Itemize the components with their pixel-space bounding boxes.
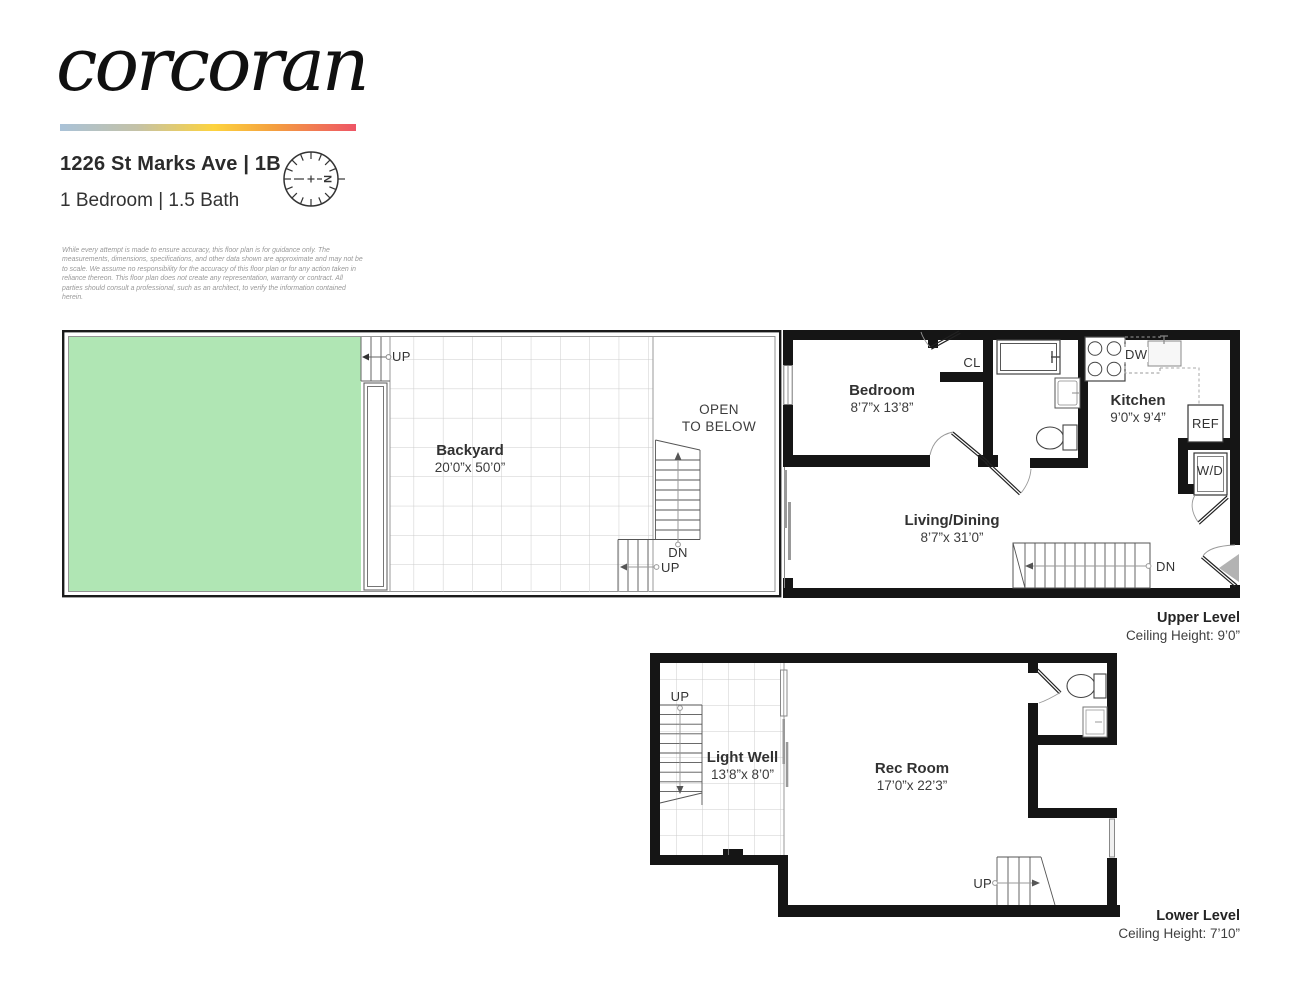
- lower-toilet-icon: [1067, 674, 1106, 698]
- compass-north-letter: N: [321, 175, 333, 183]
- dn-label-mid: DN: [659, 545, 697, 560]
- compass-icon: N: [278, 146, 348, 216]
- stove-icon: [1085, 337, 1125, 381]
- corcoran-logo: corcoran: [56, 28, 367, 102]
- up-label-backyard: UP: [392, 349, 411, 364]
- lower-level-caption: Lower Level Ceiling Height: 7’10”: [990, 908, 1240, 942]
- entry-stair: [1013, 543, 1150, 588]
- lower-bath-door: [1036, 669, 1061, 703]
- window-strip: [1110, 819, 1115, 857]
- upper-level-caption: Upper Level Ceiling Height: 9’0”: [990, 610, 1240, 644]
- disclaimer-text: While every attempt is made to ensure ac…: [62, 246, 364, 302]
- brand-gradient-bar: [60, 124, 356, 131]
- bedroom-label: Bedroom 8’7”x 13’8”: [802, 382, 962, 416]
- floorplan-page: { "brand": { "logo": "corcoran" }, "head…: [0, 0, 1296, 1000]
- bed-bath-summary: 1 Bedroom | 1.5 Bath: [60, 190, 239, 212]
- kitchen-sink-icon: [1148, 336, 1181, 366]
- lower-level-plan: UP Light Well 13’8”x 8’0” Rec Room 17’0”…: [650, 653, 1250, 923]
- up-label-entry: UP: [952, 876, 992, 891]
- rec-room-label: Rec Room 17’0”x 22’3”: [832, 760, 992, 794]
- light-well-label: Light Well 13’8”x 8’0”: [670, 749, 815, 783]
- address: 1226 St Marks Ave | 1B: [60, 153, 281, 176]
- backyard-label: Backyard 20’0”x 50’0”: [390, 442, 550, 476]
- toilet-icon: [1037, 425, 1078, 450]
- upper-plan-drawing: [62, 330, 1242, 598]
- closet-label: CL: [956, 355, 988, 370]
- washer-dryer-label: W/D: [1193, 463, 1227, 478]
- refrigerator-label: REF: [1188, 416, 1223, 431]
- compass-ring: [284, 152, 345, 206]
- dn-label-entry: DN: [1156, 559, 1175, 574]
- lower-entry-stair: [997, 857, 1055, 905]
- up-label-lightwell: UP: [662, 689, 698, 704]
- dishwasher-label: DW: [1124, 347, 1148, 362]
- bathtub-icon: [997, 340, 1060, 374]
- up-label-mid: UP: [661, 560, 680, 575]
- planter: [364, 383, 387, 590]
- open-to-below-label: OPEN TO BELOW: [649, 402, 789, 435]
- living-dining-label: Living/Dining 8’7”x 31’0”: [872, 512, 1032, 546]
- lower-sink-icon: [1083, 707, 1107, 737]
- grass-patch: [69, 337, 361, 591]
- upper-level-plan: UP Backyard 20’0”x 50’0” OPEN TO BELOW D…: [62, 330, 1242, 598]
- upper-windows: [784, 366, 792, 589]
